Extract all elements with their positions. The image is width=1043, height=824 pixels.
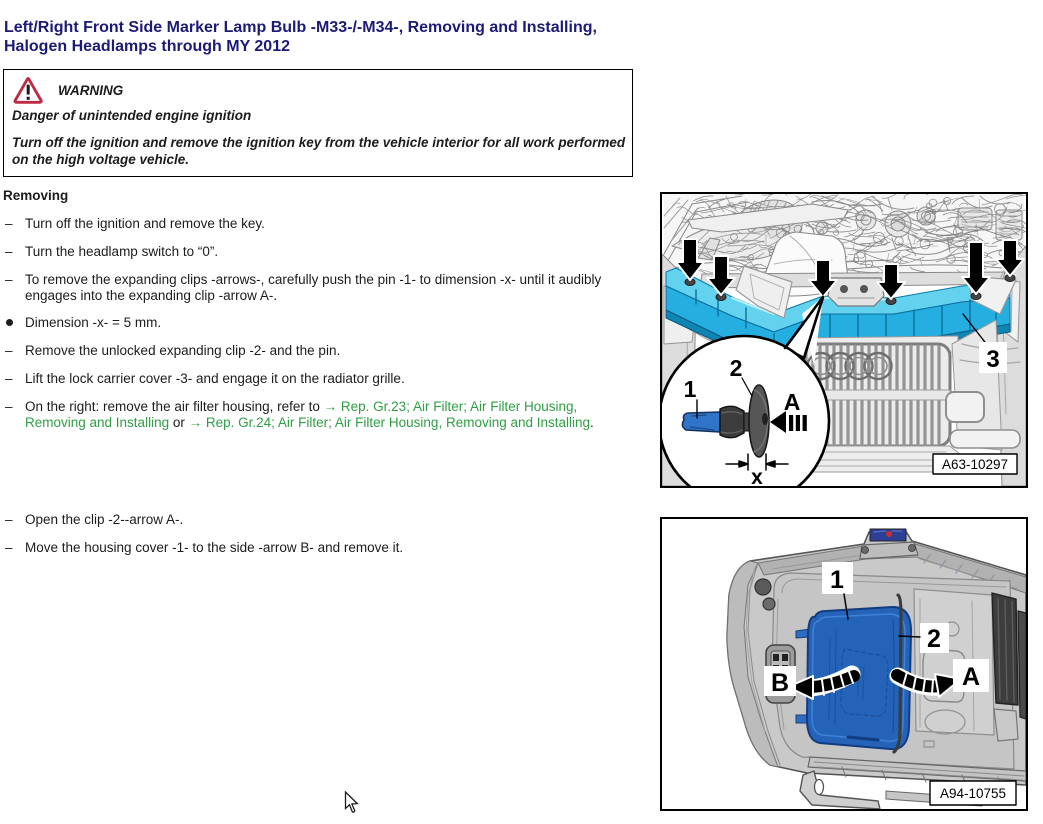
svg-text:A94-10755: A94-10755 — [940, 786, 1006, 801]
svg-text:A: A — [784, 389, 801, 415]
svg-text:2: 2 — [927, 625, 941, 653]
svg-text:x: x — [751, 466, 763, 486]
svg-text:1: 1 — [830, 566, 844, 594]
svg-text:3: 3 — [986, 346, 999, 373]
svg-text:A: A — [962, 663, 980, 691]
svg-text:2: 2 — [730, 355, 743, 381]
svg-text:1: 1 — [684, 376, 697, 402]
svg-text:B: B — [771, 669, 789, 697]
svg-text:A63-10297: A63-10297 — [942, 457, 1008, 472]
